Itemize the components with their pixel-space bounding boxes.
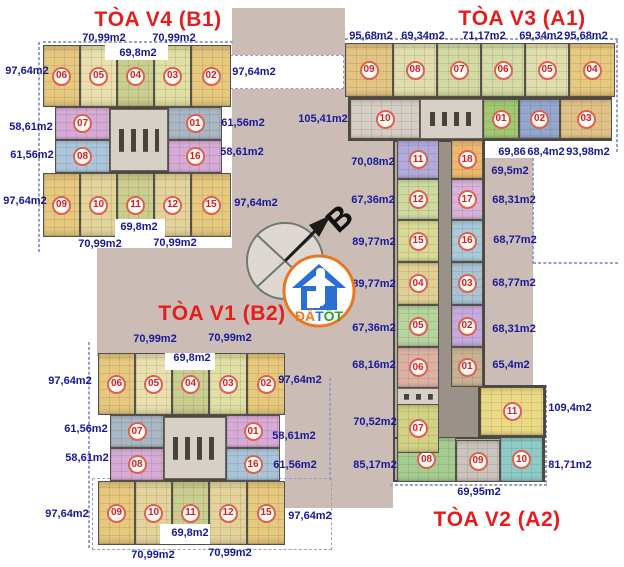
- unit-number-badge: 09: [469, 452, 488, 471]
- area-label: 58,61m2: [65, 452, 108, 464]
- building-title: TÒA V4 (B1): [94, 8, 221, 32]
- unit-number-badge: 10: [144, 504, 163, 523]
- area-label: 69,86: [498, 146, 526, 158]
- area-label: 70,99m2: [208, 332, 251, 344]
- unit-cell: 01: [451, 347, 483, 387]
- unit-number-badge: 15: [409, 232, 428, 251]
- unit-number-badge: 05: [538, 61, 557, 80]
- unit-number-badge: 18: [458, 150, 477, 169]
- area-label: 68,4m2: [527, 146, 564, 158]
- unit-number-badge: 01: [244, 422, 263, 441]
- unit-cell: 02: [191, 45, 231, 107]
- unit-number-badge: 02: [202, 67, 221, 86]
- unit-number-badge: 09: [52, 196, 71, 215]
- unit-number-badge: 08: [406, 61, 425, 80]
- area-label: 109,4m2: [548, 402, 591, 414]
- unit-cell: 16: [168, 140, 222, 173]
- unit-number-badge: 03: [163, 67, 182, 86]
- unit-cell: 02: [451, 305, 483, 347]
- unit-number-badge: 03: [458, 274, 477, 293]
- area-label: 68,31m2: [492, 194, 535, 206]
- unit-cell: 09: [98, 481, 135, 545]
- unit-cell: 10: [350, 99, 420, 139]
- unit-number-badge: 03: [577, 110, 596, 129]
- unit-number-badge: 07: [409, 419, 428, 438]
- dattot-logo: ĐẤTỐT: [280, 251, 358, 336]
- compass-north-letter: B: [319, 197, 360, 239]
- area-label: 61,56m2: [10, 149, 53, 161]
- unit-number-badge: 05: [89, 67, 108, 86]
- unit-cell: 07: [397, 404, 439, 453]
- unit-number-badge: 05: [144, 375, 163, 394]
- unit-cell: 16: [451, 220, 483, 262]
- unit-number-badge: 01: [458, 358, 477, 377]
- unit-cell: 06: [98, 353, 135, 415]
- unit-number-badge: 15: [202, 196, 221, 215]
- area-label: 68,16m2: [352, 359, 395, 371]
- area-label: 97,64m2: [48, 375, 91, 387]
- unit-number-badge: 06: [409, 358, 428, 377]
- building-title: TÒA V2 (A2): [433, 508, 560, 532]
- unit-cell: 10: [500, 437, 543, 482]
- area-label: 61,56m2: [64, 423, 107, 435]
- area-label: 95,68m2: [564, 30, 607, 42]
- unit-number-badge: 11: [409, 150, 428, 169]
- unit-number-badge: 06: [52, 67, 71, 86]
- unit-number-badge: 09: [360, 61, 379, 80]
- area-label: 85,17m2: [353, 459, 396, 471]
- unit-number-badge: 06: [494, 61, 513, 80]
- area-label: 68,77m2: [493, 234, 536, 246]
- unit-cell: 02: [519, 99, 560, 139]
- unit-number-badge: 11: [181, 504, 200, 523]
- area-label: 69,8m2: [119, 47, 156, 59]
- unit-cell: 09: [43, 173, 80, 237]
- unit-cell: 15: [247, 481, 285, 545]
- area-label: 93,98m2: [566, 146, 609, 158]
- building-title: TÒA V3 (A1): [458, 7, 585, 31]
- unit-number-badge: 12: [409, 190, 428, 209]
- area-label: 70,08m2: [351, 156, 394, 168]
- unit-number-badge: 11: [126, 196, 145, 215]
- area-label: 61,56m2: [221, 117, 264, 129]
- unit-number-badge: 15: [257, 504, 276, 523]
- unit-number-badge: 01: [492, 110, 511, 129]
- elevator-core: [110, 109, 168, 171]
- area-label: 97,64m2: [232, 66, 275, 78]
- unit-number-badge: 07: [128, 422, 147, 441]
- unit-number-badge: 08: [128, 455, 147, 474]
- area-label: 70,99m2: [153, 237, 196, 249]
- unit-cell: 15: [191, 173, 231, 237]
- area-label: 69,34m2: [401, 30, 444, 42]
- unit-number-badge: 07: [450, 61, 469, 80]
- unit-cell: 09: [345, 43, 393, 97]
- unit-cell: 01: [483, 99, 519, 139]
- unit-cell: 12: [397, 179, 439, 220]
- elevator-core: [420, 99, 483, 139]
- unit-cell: 03: [451, 262, 483, 305]
- unit-number-badge: 04: [126, 67, 145, 86]
- area-label: 97,64m2: [45, 508, 88, 520]
- area-label: 70,52m2: [353, 416, 396, 428]
- area-label: 71,17m2: [462, 30, 505, 42]
- unit-cell: 06: [481, 43, 525, 97]
- unit-cell: 12: [209, 481, 247, 545]
- svg-text:ĐẤTỐT: ĐẤTỐT: [295, 307, 344, 324]
- boundary-dashed-line: [533, 262, 618, 264]
- unit-number-badge: 12: [219, 504, 238, 523]
- unit-cell: 01: [168, 107, 222, 140]
- area-label: 70,99m2: [131, 549, 174, 561]
- unit-cell: 10: [80, 173, 117, 237]
- boundary-dashed-line: [532, 158, 534, 264]
- unit-cell: 07: [437, 43, 481, 97]
- area-label: 97,64m2: [278, 374, 321, 386]
- area-label: 69,8m2: [173, 352, 210, 364]
- unit-number-badge: 08: [73, 147, 92, 166]
- area-label: 69,5m2: [491, 165, 528, 177]
- logo-text-ot: ỐT: [324, 307, 344, 324]
- unit-number-badge: 02: [257, 375, 276, 394]
- area-label: 69,8m2: [120, 221, 157, 233]
- unit-number-badge: 02: [530, 110, 549, 129]
- unit-cell: 09: [456, 440, 500, 482]
- area-label: 68,77m2: [492, 277, 535, 289]
- unit-cell: 05: [525, 43, 569, 97]
- unit-number-badge: 05: [409, 317, 428, 336]
- unit-cell: 16: [226, 448, 280, 481]
- area-label: 69,34m2: [519, 30, 562, 42]
- boundary-dashed-line: [329, 378, 331, 480]
- area-label: 58,61m2: [220, 146, 263, 158]
- area-label: 61,56m2: [273, 459, 316, 471]
- area-label: 70,99m2: [208, 547, 251, 559]
- unit-number-badge: 11: [503, 402, 522, 421]
- unit-cell: 15: [397, 220, 439, 262]
- unit-cell: 07: [110, 415, 164, 448]
- unit-cell: 11: [480, 387, 544, 436]
- area-label: 70,99m2: [152, 32, 195, 44]
- unit-cell: 07: [55, 107, 110, 140]
- unit-number-badge: 16: [458, 232, 477, 251]
- unit-cell: 08: [55, 140, 110, 173]
- unit-number-badge: 10: [376, 110, 395, 129]
- elevator-core: [397, 388, 439, 405]
- area-label: 69,8m2: [171, 527, 208, 539]
- elevator-core: [164, 417, 226, 479]
- unit-number-badge: 01: [186, 114, 205, 133]
- area-label: 97,64m2: [5, 65, 48, 77]
- unit-number-badge: 10: [512, 450, 531, 469]
- unit-cell: 18: [451, 140, 483, 179]
- unit-number-badge: 09: [107, 504, 126, 523]
- unit-number-badge: 10: [89, 196, 108, 215]
- unit-number-badge: 07: [73, 114, 92, 133]
- area-label: 58,61m2: [272, 430, 315, 442]
- area-label: 68,31m2: [492, 323, 535, 335]
- area-label: 65,4m2: [492, 359, 529, 371]
- area-label: 95,68m2: [349, 30, 392, 42]
- area-label: 105,41m2: [298, 113, 348, 125]
- logo-text-dat: ĐẤ: [295, 308, 315, 324]
- corridor: [439, 142, 451, 438]
- area-label: 70,99m2: [82, 32, 125, 44]
- unit-cell: 04: [397, 262, 439, 305]
- floorplan-canvas: B ĐẤTỐT 06050403020708011609101112150908…: [0, 0, 624, 567]
- area-label: 97,64m2: [3, 195, 46, 207]
- unit-number-badge: 04: [409, 274, 428, 293]
- boundary-dashed-line: [616, 40, 618, 152]
- unit-cell: 06: [397, 347, 439, 388]
- unit-number-badge: 17: [458, 190, 477, 209]
- unit-cell: 08: [393, 43, 437, 97]
- unit-number-badge: 16: [244, 455, 263, 474]
- unit-cell: 17: [451, 179, 483, 220]
- unit-cell: 04: [569, 43, 615, 97]
- corridor: [451, 387, 478, 437]
- area-label: 70,99m2: [133, 333, 176, 345]
- unit-number-badge: 04: [583, 61, 602, 80]
- unit-cell: 11: [397, 140, 439, 179]
- unit-number-badge: 03: [219, 375, 238, 394]
- unit-number-badge: 02: [458, 317, 477, 336]
- unit-number-badge: 12: [163, 196, 182, 215]
- unit-number-badge: 04: [181, 375, 200, 394]
- area-label: 81,71m2: [548, 459, 591, 471]
- unit-number-badge: 06: [107, 375, 126, 394]
- unit-cell: 03: [560, 99, 612, 139]
- unit-cell: 05: [397, 305, 439, 347]
- unit-number-badge: 16: [186, 147, 205, 166]
- unit-cell: 08: [110, 448, 164, 481]
- area-label: 97,64m2: [288, 510, 331, 522]
- area-label: 70,99m2: [78, 238, 121, 250]
- area-label: 69,95m2: [457, 486, 500, 498]
- area-label: 58,61m2: [9, 121, 52, 133]
